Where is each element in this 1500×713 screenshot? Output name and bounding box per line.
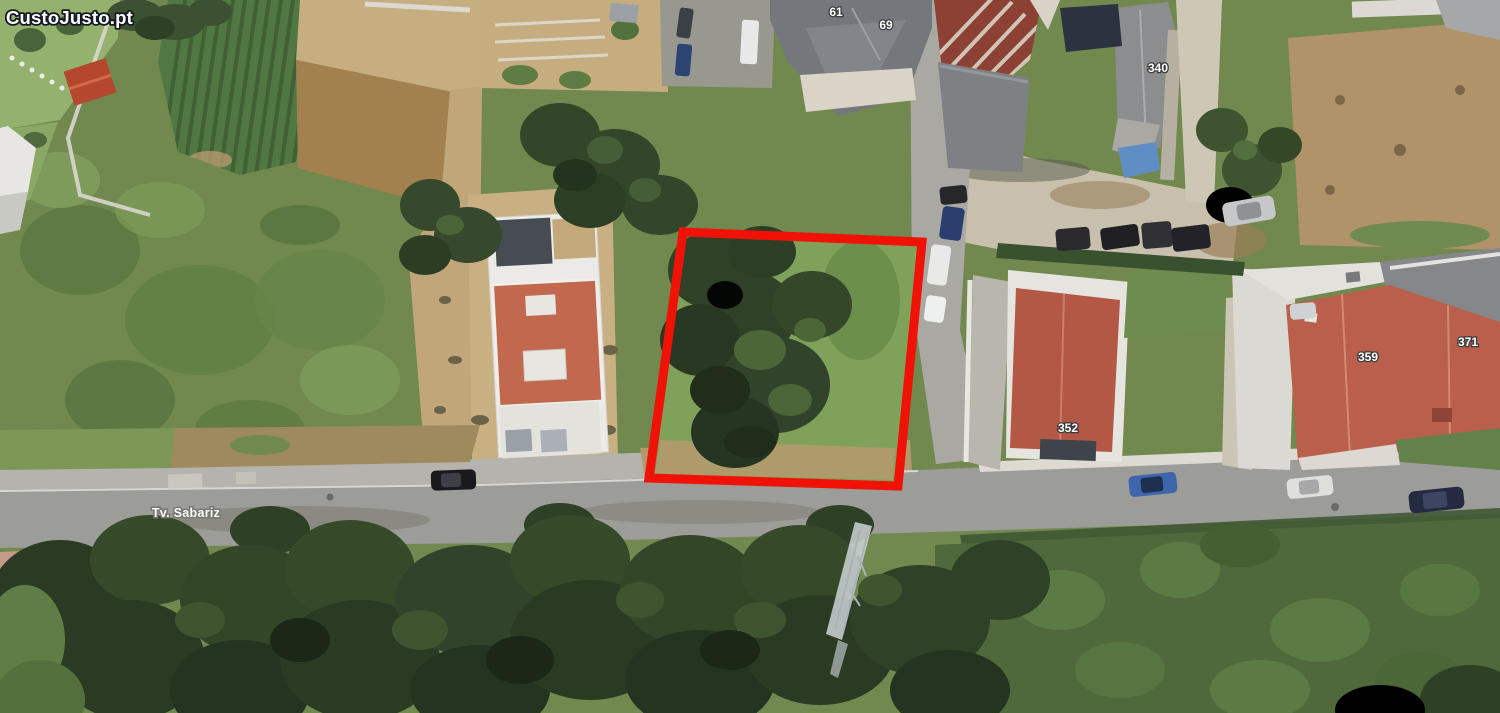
car	[1289, 302, 1316, 320]
house-number-69: 69	[879, 18, 893, 32]
house-number-340: 340	[1148, 61, 1168, 75]
aerial-photo-listing-image: Tv. Sabariz 61 69 340 352 359 371 CustoJ…	[0, 0, 1500, 713]
van	[740, 20, 759, 65]
car	[1055, 227, 1091, 252]
nursery-plot	[480, 0, 668, 92]
car	[939, 185, 968, 206]
dark-roof-section	[494, 218, 552, 267]
car	[431, 469, 477, 491]
satellite-scene: Tv. Sabariz 61 69 340 352 359 371 CustoJ…	[0, 0, 1500, 713]
house-number-371: 371	[1458, 335, 1478, 349]
house-number-61: 61	[829, 5, 843, 19]
top-right-field	[1288, 0, 1500, 250]
white-house	[486, 212, 608, 458]
car	[675, 43, 693, 76]
car	[923, 295, 946, 324]
building-gray-flat	[938, 62, 1030, 172]
car	[1141, 221, 1173, 250]
watermark-logo: CustoJusto.pt	[6, 7, 133, 28]
street-label: Tv. Sabariz	[152, 506, 220, 520]
car	[939, 206, 965, 242]
navy-shed	[1060, 4, 1122, 52]
car	[1171, 224, 1212, 252]
house-number-359: 359	[1358, 350, 1378, 364]
house-number-352: 352	[1058, 421, 1078, 435]
